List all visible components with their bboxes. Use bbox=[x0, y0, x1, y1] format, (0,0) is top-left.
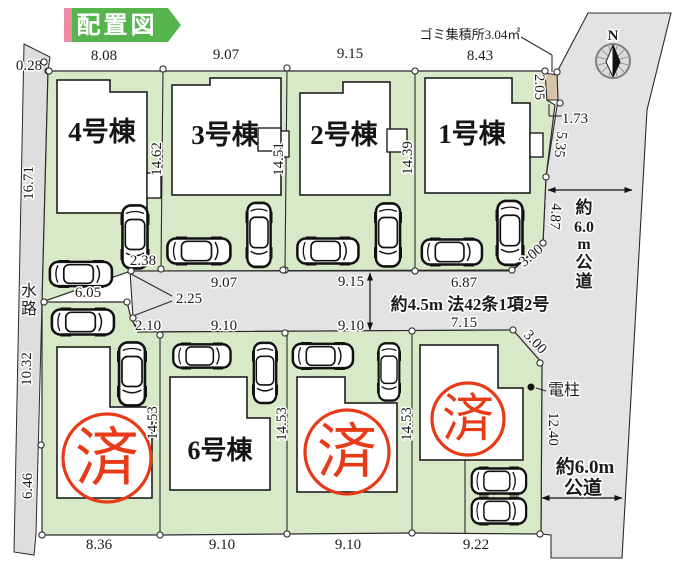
survey-point bbox=[412, 268, 418, 274]
survey-point bbox=[160, 66, 166, 72]
dimension-label: 約 bbox=[576, 197, 593, 217]
building-1-label: 1号棟 bbox=[438, 119, 506, 149]
car-icon bbox=[52, 309, 114, 336]
dimension-label: 1.73 bbox=[562, 111, 588, 127]
car-icon bbox=[297, 238, 358, 265]
car-icon bbox=[378, 343, 400, 400]
dimension-label: 6.05 bbox=[75, 285, 101, 301]
survey-point bbox=[41, 299, 47, 305]
dimension-label: 8.08 bbox=[91, 48, 117, 64]
utility-pole-dot bbox=[528, 384, 535, 391]
site-plan-page: 4号棟3号棟2号棟1号棟6号棟済済済0.288.089.079.158.43ゴミ… bbox=[0, 0, 674, 571]
car-icon bbox=[253, 343, 277, 403]
dimension-label: 9.22 bbox=[463, 537, 489, 553]
dimension-label: 6.0 bbox=[574, 219, 594, 236]
dimension-label: 2.05 bbox=[531, 74, 547, 100]
dimension-label: 14.53 bbox=[274, 407, 290, 441]
generated-drawing: 4号棟3号棟2号棟1号棟6号棟済済済0.288.089.079.158.43ゴミ… bbox=[14, 13, 671, 558]
dimension-label: 約4.5m 法42条1項2号 bbox=[391, 294, 550, 314]
dimension-label: 6.46 bbox=[20, 472, 36, 499]
dimension-label: 約6.0m bbox=[556, 455, 615, 478]
building-2-label: 2号棟 bbox=[310, 120, 378, 150]
sold-stamp-text: 済 bbox=[442, 392, 494, 449]
dimension-label: 9.07 bbox=[211, 275, 238, 291]
dimension-label: 8.36 bbox=[86, 537, 113, 553]
survey-point bbox=[543, 174, 549, 180]
dimension-label: 電柱 bbox=[548, 381, 580, 399]
car-icon bbox=[118, 342, 146, 405]
car-icon bbox=[50, 261, 112, 287]
survey-point bbox=[557, 100, 563, 106]
dimension-label: 14.53 bbox=[145, 406, 161, 440]
dimension-label: 9.10 bbox=[338, 318, 364, 334]
site-plan-svg: 4号棟3号棟2号棟1号棟6号棟済済済0.288.089.079.158.43ゴミ… bbox=[0, 0, 674, 571]
survey-point bbox=[509, 267, 515, 273]
survey-point bbox=[157, 532, 163, 538]
page-title: 配置図 bbox=[77, 12, 158, 39]
dimension-label: 2.10 bbox=[135, 318, 161, 334]
car-icon bbox=[167, 238, 230, 265]
dimension-label: 12.40 bbox=[545, 412, 561, 446]
survey-point bbox=[158, 266, 164, 272]
car-icon bbox=[247, 203, 272, 267]
dimension-label: N bbox=[608, 28, 619, 44]
dimension-label: 5.35 bbox=[550, 130, 569, 158]
dimension-label: 4.87 bbox=[546, 203, 564, 231]
building-porch bbox=[530, 133, 543, 157]
building-4-label: 4号棟 bbox=[68, 117, 136, 147]
dimension-label: 7.15 bbox=[451, 315, 477, 331]
dimension-label: 0.28 bbox=[16, 58, 42, 74]
survey-point bbox=[510, 327, 516, 333]
dimension-label: 2.38 bbox=[130, 253, 156, 269]
survey-point bbox=[554, 69, 560, 75]
dimension-label: 2.25 bbox=[176, 291, 202, 307]
car-icon bbox=[173, 344, 230, 369]
title-banner: 配置図 bbox=[64, 8, 181, 42]
survey-point bbox=[130, 315, 136, 321]
dimension-label: 道 bbox=[576, 271, 593, 291]
car-icon bbox=[375, 203, 401, 266]
survey-point bbox=[128, 268, 134, 274]
dimension-label: 14.51 bbox=[271, 142, 287, 176]
survey-point bbox=[540, 240, 546, 246]
dimension-label: 14.39 bbox=[400, 141, 416, 175]
building-6-label: 6号棟 bbox=[187, 436, 253, 465]
dimension-label: ゴミ集積所3.04㎡ bbox=[420, 27, 521, 42]
survey-point bbox=[537, 360, 543, 366]
survey-point bbox=[284, 65, 290, 71]
survey-point bbox=[537, 531, 543, 537]
survey-point bbox=[412, 68, 418, 74]
dimension-label: m bbox=[577, 236, 591, 253]
dimension-label: 9.15 bbox=[337, 46, 363, 62]
dimension-label: 6.87 bbox=[451, 275, 478, 291]
dimension-label: 路 bbox=[21, 300, 37, 318]
dimension-label: 16.71 bbox=[21, 166, 37, 200]
survey-point bbox=[41, 59, 47, 65]
survey-point bbox=[38, 442, 44, 448]
dimension-label: 水 bbox=[21, 282, 37, 300]
dimension-label: 9.10 bbox=[209, 537, 235, 553]
boundary-line bbox=[521, 37, 552, 55]
dimension-label: 14.62 bbox=[149, 142, 165, 176]
survey-point bbox=[284, 531, 290, 537]
dimension-label: 10.32 bbox=[19, 352, 35, 386]
car-icon bbox=[472, 468, 526, 495]
survey-point bbox=[124, 299, 130, 305]
dimension-label: 9.15 bbox=[338, 274, 364, 290]
dimension-label: 9.10 bbox=[335, 537, 361, 553]
car-icon bbox=[422, 239, 482, 266]
dimension-label: 9.10 bbox=[211, 318, 237, 334]
dimension-label: 8.43 bbox=[467, 48, 493, 64]
dimension-label: 公道 bbox=[564, 476, 602, 499]
survey-point bbox=[46, 68, 52, 74]
dimension-label: 公 bbox=[576, 253, 593, 272]
dimension-label: 9.07 bbox=[213, 47, 240, 63]
survey-point bbox=[280, 267, 286, 273]
survey-point bbox=[409, 328, 415, 334]
survey-point bbox=[39, 532, 45, 538]
dimension-label: 14.53 bbox=[399, 407, 415, 441]
survey-point bbox=[409, 530, 415, 536]
car-icon bbox=[293, 343, 353, 369]
survey-point bbox=[542, 68, 548, 74]
car-icon bbox=[472, 498, 526, 525]
sold-stamp-text: 済 bbox=[317, 419, 377, 485]
building-3-label: 3号棟 bbox=[191, 120, 259, 150]
survey-point bbox=[282, 330, 288, 336]
survey-point bbox=[157, 332, 163, 338]
sold-stamp-text: 済 bbox=[75, 423, 139, 494]
title-pink-bar bbox=[64, 8, 72, 42]
